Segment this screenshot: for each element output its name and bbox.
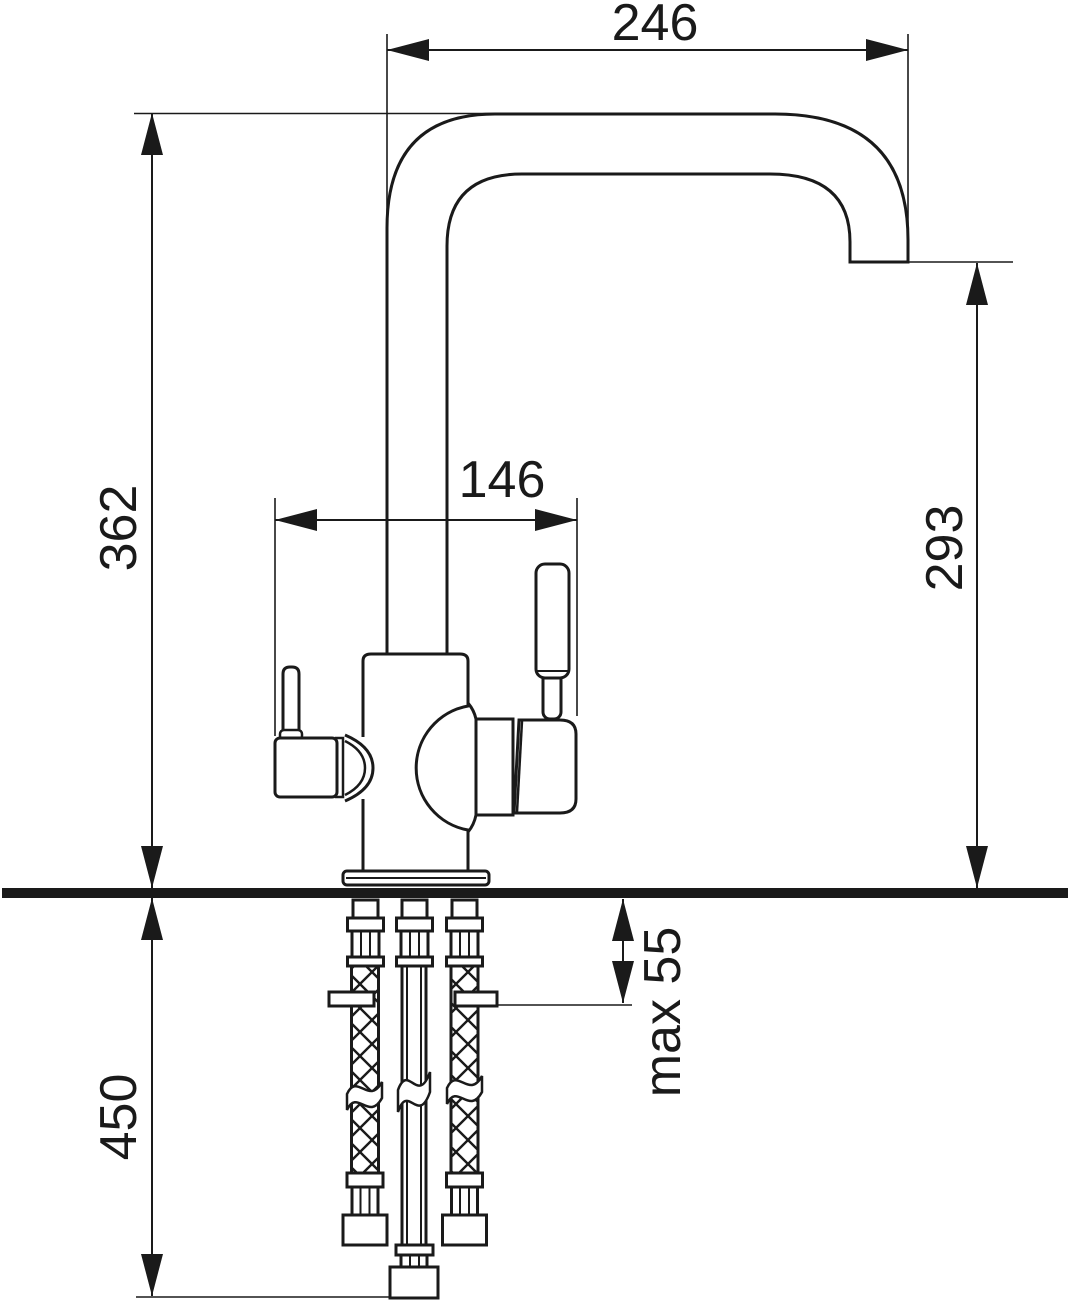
right-handle [476, 564, 576, 815]
supply-hose-center [390, 900, 438, 1298]
dim-246-label: 246 [612, 0, 699, 52]
faucet-dimension-drawing: 246 362 146 293 450 max 55 [0, 0, 1073, 1300]
mounting-plate-left [329, 992, 374, 1006]
right-handle-body [514, 720, 576, 813]
left-handle-body [275, 738, 337, 797]
body-to-cartridge-curve-bottom [468, 815, 476, 832]
left-lever-rod [283, 667, 299, 734]
dim-max55-arrow-bottom [612, 961, 634, 1003]
countertop-bar [2, 888, 1068, 898]
dim-246-arrow-right [866, 39, 908, 61]
dim-293-arrow-bottom [966, 846, 988, 888]
dim-450-arrow-top [141, 898, 163, 940]
tube-center-top-fitting [397, 900, 433, 966]
spout-outline [387, 114, 908, 656]
dim-450-label: 450 [90, 1074, 148, 1161]
faucet-body [363, 654, 476, 871]
dim-293-label: 293 [916, 505, 974, 592]
dim-max55-arrow-top [612, 899, 634, 941]
dim-max55-label: max 55 [634, 927, 692, 1098]
dim-362-arrow-top [141, 113, 163, 155]
hose-right-top-fitting [447, 900, 483, 966]
drawing-canvas: 246 362 146 293 450 max 55 [0, 0, 1073, 1300]
left-adapter-mask [340, 737, 374, 799]
left-handle [275, 667, 374, 801]
supply-hose-left [343, 900, 387, 1245]
hose-left-top-fitting [348, 900, 384, 966]
dim-246-arrow-left [387, 39, 429, 61]
dimension-246: 246 [387, 0, 908, 61]
right-lever-grip [536, 564, 569, 678]
dim-362-arrow-bottom [141, 846, 163, 888]
faucet-spout [387, 114, 908, 656]
dimension-293: 293 [916, 263, 988, 888]
dim-146-arrow-left [275, 509, 317, 531]
supply-hose-right [443, 900, 487, 1245]
dimension-max55: max 55 [612, 899, 692, 1097]
dim-146-arrow-right [535, 509, 577, 531]
body-to-cartridge-curve-top [468, 703, 476, 719]
dimension-450: 450 [90, 898, 163, 1296]
mounting-plate-right [455, 992, 497, 1006]
dimension-362: 362 [90, 113, 163, 888]
right-connector-ring [476, 719, 513, 815]
tube-center-bottom-fitting [390, 1245, 438, 1298]
dim-146-label: 146 [459, 451, 546, 509]
hose-left-bottom-fitting [343, 1173, 387, 1245]
body-outline [363, 654, 468, 871]
mounting-flange [343, 871, 489, 885]
dim-293-arrow-top [966, 263, 988, 305]
hose-right-bottom-fitting [443, 1173, 487, 1245]
supply-hoses [329, 900, 497, 1298]
dim-362-label: 362 [90, 485, 148, 572]
dim-450-arrow-bottom [141, 1254, 163, 1296]
